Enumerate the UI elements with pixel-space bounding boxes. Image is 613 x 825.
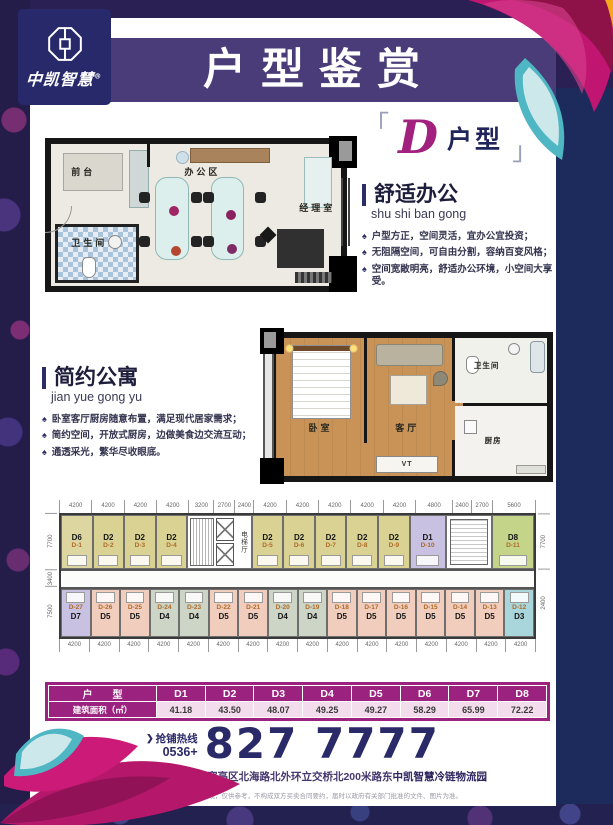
floorplate-diagram: 4200420042004200320027002400420042004200… [45,500,550,652]
sofa [376,344,443,367]
dimension-label: 4200 [287,500,319,513]
unit-number: D-17 [364,605,378,612]
bottom-unit-row: D-27 D7 D-26 D5 D-25 D5 [61,589,534,637]
floorplate-unit: D2 D-9 [378,515,410,569]
plant [176,151,189,164]
office-section: 舒适办公 shu shi ban gong ♠ 户型方正，空间灵活，宜办公宜投资… [362,184,558,292]
unit-type-badge: 「 D 户型 」 [363,112,538,164]
coffee-table [390,375,427,405]
floorplate-unit: D-15 D5 [416,589,446,637]
unit-number: D-8 [357,543,367,550]
floorplate-unit: D-25 D5 [120,589,150,637]
floorplate-unit: D-21 D5 [238,589,268,637]
feature-bullet: ♠ 空间宽敞明亮，舒适办公环境，小空间大享受。 [362,264,558,289]
floorplate-unit: D2 D-4 [156,515,188,569]
unit-type: D2 [135,534,145,542]
dimension-label: 4200 [506,639,535,652]
dimension-label: 4200 [254,500,286,513]
unit-number: D-12 [512,605,526,612]
section-title: 舒适办公 [362,184,558,206]
feature-bullet: ♠ 卧室客厅厨房随意布置，满足现代居家需求； [42,414,280,426]
floorplate-unit: D2 D-8 [346,515,378,569]
table-row-label: 建筑面积（㎡） [49,702,156,717]
unit-type: D4 [159,613,169,621]
project-name: 中凯智慧冷链物流园 [392,771,487,783]
curtain-wall [341,178,350,246]
wall [463,403,547,406]
bench [190,148,270,163]
unit-type: D2 [103,534,113,542]
unit-type: D4 [278,613,288,621]
stair-core [446,515,492,569]
spade-bullet-icon: ♠ [42,430,47,442]
dimension-label: 2700 [214,500,235,513]
registered-mark: ® [94,71,103,80]
unit-type: D2 [262,534,272,542]
unit-number: D-26 [98,605,112,612]
dimension-label: 4200 [447,639,477,652]
sink-icon [108,235,122,249]
dimension-label: 3400 [45,569,57,586]
feature-bullet: ♠ 户型方正，空间灵活，宜办公宜投资； [362,231,558,243]
floorplate-unit: D-20 D4 [268,589,298,637]
elevator-hall: 电梯厅 [234,516,250,568]
table-value-cell: 48.07 [254,702,302,717]
floorplate-unit: D-24 D4 [150,589,180,637]
right-dimension-column: 77002400 [538,513,550,636]
dimension-label: 4200 [239,639,269,652]
dimension-label: 5600 [493,500,535,513]
unit-type: D2 [357,534,367,542]
floorplate-unit: D2 D-6 [283,515,315,569]
brand-logo: 中凯智慧® [18,9,111,105]
room-label-bathroom: 卫生间 [474,360,500,371]
unit-type: D5 [248,613,258,621]
bookshelf [295,272,333,283]
elevator-hall-label: 电梯厅 [238,531,248,554]
floorplate-unit: D-23 D4 [179,589,209,637]
table-value-cell: 43.50 [206,702,254,717]
bathroom-area [55,224,139,284]
table-header-cell: D5 [352,686,400,701]
floorplate-unit: D-16 D5 [386,589,416,637]
dimension-label: 4200 [60,500,92,513]
bathroom-area [455,338,547,403]
unit-type: D5 [396,613,406,621]
partition-wall [147,144,150,167]
shaft-block [260,458,284,484]
unit-suffix: 户型 [447,120,503,156]
bracket-open: 「 [363,112,389,138]
project-address: 项目地址/山东省潍坊市寒亭区北海路北外环立交桥北200米路东中凯智慧冷链物流园 [30,769,556,784]
unit-type: D5 [218,613,228,621]
floorplate-unit: D-19 D4 [298,589,328,637]
room-label-workarea: 办公区 [184,165,220,178]
apartment-section: 简约公寓 jian yue gong yu ♠ 卧室客厅厨房随意布置，满足现代居… [42,367,280,463]
unit-type: D7 [71,613,81,621]
page-title: 户型鉴赏 [203,49,435,92]
floorplate-unit: D2 D-2 [93,515,125,569]
table-header-cell: D7 [449,686,497,701]
dimension-label: 7700 [538,513,550,569]
sink-icon [508,343,520,355]
dimension-label: 4200 [125,500,157,513]
dimension-label: 4200 [209,639,239,652]
content-panel: 户型鉴赏 「 D 户型 」 [30,18,556,806]
shaft-block [260,328,284,354]
dimension-label: 4200 [417,639,447,652]
dimension-label: 4200 [351,500,383,513]
table-value-row: 建筑面积（㎡） 41.1843.5048.0749.2549.2758.2965… [49,702,546,717]
dimension-label: 7700 [45,513,57,569]
bed [292,345,351,419]
spade-bullet-icon: ♠ [362,247,367,259]
right-navy-band [556,88,613,825]
unit-number: D-19 [305,605,319,612]
floorplate-unit: D6 D-1 [61,515,93,569]
spade-bullet-icon: ♠ [42,447,47,459]
unit-number: D-5 [262,543,272,550]
unit-number: D-21 [246,605,260,612]
table-value-cell: 41.18 [157,702,205,717]
floorplate-unit: D8 D-11 [492,515,534,569]
unit-type: D2 [389,534,399,542]
dimension-label: 4200 [149,639,179,652]
unit-number: D-11 [506,543,520,550]
unit-number: D-22 [217,605,231,612]
dimension-label: 4200 [328,639,358,652]
unit-type: D5 [366,613,376,621]
unit-type: D6 [72,534,82,542]
unit-number: D-4 [166,543,176,550]
floorplate-unit: D-13 D5 [475,589,505,637]
table-header-cell: D2 [206,686,254,701]
legal-disclaimer: 本资料图片及文字仅作示意表现，仅供参考，不构成双方买卖合同要约，届时以政府有关部… [30,790,556,800]
dimension-label: 4200 [384,500,416,513]
unit-number: D-25 [128,605,142,612]
section-title: 简约公寓 [42,367,280,389]
left-dimension-column: 770034007500 [45,513,57,636]
unit-type: D5 [455,613,465,621]
floorplate-unit: D2 D-5 [252,515,284,569]
unit-number: D-20 [276,605,290,612]
elevator-shafts [216,516,234,568]
dimension-label: 4200 [319,500,351,513]
dimension-label: 4200 [60,639,90,652]
unit-type: D2 [326,534,336,542]
unit-number: D-10 [421,543,435,550]
feature-text: 无阻隔空间，可自由分割，容纳百变风格； [372,247,553,259]
unit-number: D-9 [389,543,399,550]
feature-text: 通透采光，繁华尽收眼底。 [52,447,166,459]
kitchen-counter [516,465,546,474]
office-floorplan: 前台 办公区 经理室 卫生间 [45,138,347,292]
dimension-label: 2400 [538,569,550,636]
elevator-shaft-icon [216,543,234,566]
dimension-label: 4200 [120,639,150,652]
shaft-block [329,136,357,168]
dimension-label: 2400 [235,500,254,513]
dimension-label: 4200 [387,639,417,652]
tv-cabinet: VT [376,456,438,473]
floorplate-unit: D-14 D5 [445,589,475,637]
table-value-cell: 49.25 [303,702,351,717]
table-value-cell: 65.99 [449,702,497,717]
unit-number: D-13 [483,605,497,612]
unit-type: D5 [130,613,140,621]
dimension-label: 4200 [179,639,209,652]
floorplate-unit: D-26 D5 [91,589,121,637]
manager-desk [277,229,323,267]
armchair [433,371,448,386]
unit-type: D5 [425,613,435,621]
feature-bullet: ♠ 简约空间，开放式厨房，边做美食边交流互动； [42,430,280,442]
unit-type: D5 [485,613,495,621]
unit-type: D5 [337,613,347,621]
unit-type: D3 [514,613,524,621]
dimension-label: 2400 [453,500,472,513]
hotline: ❯ 抢铺热线 0536+ 827 7777 [30,726,556,762]
dimension-label: 4200 [92,500,124,513]
staircase-icon [190,518,214,566]
feature-bullet: ♠ 通透采光，繁华尽收眼底。 [42,447,280,459]
unit-area-table: 户 型 D1D2D3D4D5D6D7D8 建筑面积（㎡） 41.1843.504… [45,682,550,721]
unit-type: D4 [189,613,199,621]
unit-number: D-18 [335,605,349,612]
dimension-label: 4200 [477,639,507,652]
unit-letter: D [398,117,438,158]
unit-type: D8 [508,534,518,542]
unit-number: D-2 [103,543,113,550]
dimension-label: 4200 [298,639,328,652]
unit-type: D5 [100,613,110,621]
poster: 户型鉴赏 「 D 户型 」 [0,0,613,825]
unit-number: D-1 [72,543,82,550]
unit-number: D-14 [453,605,467,612]
apartment-floorplan: VT 卧室 客厅 卫生间 厨房 [270,332,553,482]
unit-type: D2 [166,534,176,542]
table-value-cell: 58.29 [401,702,449,717]
unit-number: D-6 [294,543,304,550]
unit-number: D-27 [69,605,83,612]
floorplate-unit: D-12 D3 [504,589,534,637]
elevator-shaft-icon [216,518,234,541]
phone-prefix: 0536+ [146,746,198,759]
lamp-glow [349,344,358,353]
floorplate-unit: D-22 D5 [209,589,239,637]
table-corner-cell: 户 型 [49,686,156,701]
unit-number: D-7 [325,543,335,550]
room-label-bedroom: 卧室 [309,421,333,434]
feature-bullet: ♠ 无阻隔空间，可自由分割，容纳百变风格； [362,247,558,259]
unit-number: D-3 [135,543,145,550]
feature-text: 简约空间，开放式厨房，边做美食边交流互动； [52,430,252,442]
table-header-cell: D4 [303,686,351,701]
room-label-bathroom: 卫生间 [71,236,107,249]
toilet-icon [82,257,96,278]
manager-chair [260,226,277,243]
arrow-icon: ❯ [146,733,154,744]
top-dimension-row: 4200420042004200320027002400420042004200… [59,500,536,513]
office-bullet-list: ♠ 户型方正，空间灵活，宜办公宜投资； ♠ 无阻隔空间，可自由分割，容纳百变风格… [362,231,558,288]
unit-type: D4 [307,613,317,621]
unit-number: D-16 [394,605,408,612]
table-header-cell: D3 [254,686,302,701]
octagon-coin-emblem-icon [46,25,84,63]
workstation-table [211,177,245,260]
dimension-label: 4200 [90,639,120,652]
fridge-icon [464,420,477,434]
bathtub-icon [530,341,545,373]
floorplate-unit: D-27 D7 [61,589,91,637]
table-header-cell: D6 [401,686,449,701]
floorplate-unit: D2 D-7 [315,515,347,569]
feature-text: 空间宽敞明亮，舒适办公环境，小空间大享受。 [372,264,558,289]
spade-bullet-icon: ♠ [362,264,367,276]
top-unit-row: D6 D-1 D2 D-2 D2 [61,515,534,569]
dimension-label: 4200 [157,500,189,513]
feature-text: 户型方正，空间灵活，宜办公宜投资； [372,231,534,243]
room-label-reception: 前台 [71,165,95,178]
unit-type: D1 [423,534,433,542]
floorplate-unit: D-17 D5 [357,589,387,637]
unit-number: D-23 [187,605,201,612]
spade-bullet-icon: ♠ [362,231,367,243]
title-banner: 户型鉴赏 [85,38,556,102]
table-header-cell: D8 [498,686,546,701]
unit-number: D-15 [423,605,437,612]
table-header-cell: D1 [157,686,205,701]
dimension-label: 4800 [416,500,453,513]
chair-cushions [51,144,61,154]
floorplate-unit: D-18 D5 [327,589,357,637]
bottom-bokeh-band [0,804,613,825]
phone-number: 827 7777 [205,726,440,762]
lamp-glow [285,344,294,353]
shaft-block [329,256,357,292]
feature-text: 卧室客厅厨房随意布置，满足现代居家需求； [52,414,242,426]
left-bokeh-band [0,0,30,825]
table-value-cell: 49.27 [352,702,400,717]
unit-type: D2 [294,534,304,542]
corridor [61,569,534,589]
dimension-label: 2700 [472,500,493,513]
dimension-label: 7500 [45,586,57,636]
section-pinyin: shu shi ban gong [362,207,558,221]
hotline-label: ❯ 抢铺热线 [146,731,198,746]
bracket-close: 」 [512,138,538,164]
room-label-kitchen: 厨房 [485,435,502,446]
room-label-living: 客厅 [395,421,419,434]
building-core: 电梯厅 [187,515,251,569]
workstation-table [155,177,189,260]
wall [364,338,367,443]
apartment-bullet-list: ♠ 卧室客厅厨房随意布置，满足现代居家需求； ♠ 简约空间，开放式厨房，边做美食… [42,414,280,459]
room-label-manager: 经理室 [299,201,335,214]
table-value-cell: 72.22 [498,702,546,717]
spade-bullet-icon: ♠ [42,414,47,426]
brand-name: 中凯智慧® [26,66,104,90]
dimension-label: 4200 [268,639,298,652]
floorplate-unit: D1 D-10 [410,515,446,569]
dimension-label: 4200 [358,639,388,652]
staircase-icon [450,519,488,565]
balcony [263,344,274,471]
table-header-row: 户 型 D1D2D3D4D5D6D7D8 [49,686,546,701]
floorplate-unit: D2 D-3 [124,515,156,569]
bottom-dimension-row: 4200420042004200420042004200420042004200… [59,639,536,652]
section-pinyin: jian yue gong yu [42,390,280,404]
dimension-label: 3200 [189,500,214,513]
unit-number: D-24 [157,605,171,612]
building-outline: D6 D-1 D2 D-2 D2 [59,513,536,639]
